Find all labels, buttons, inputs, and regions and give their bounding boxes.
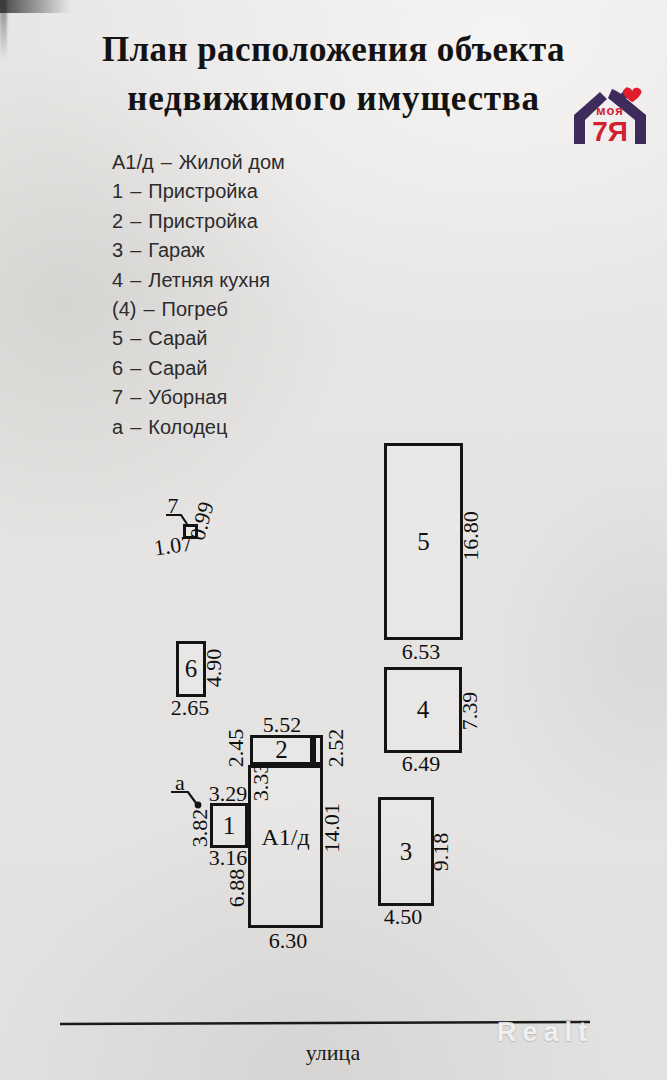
dim-b7-height: 0.99 (186, 500, 217, 543)
dim-b6-width: 2.65 (171, 697, 210, 719)
dim-b2-height-left: 2.45 (225, 729, 247, 768)
dim-b3-width: 4.50 (384, 906, 423, 928)
building-1-number: 1 (223, 812, 236, 840)
building-2-porch-strip (313, 735, 323, 765)
building-5-shed: 5 (384, 443, 463, 640)
dim-b3-height: 9.18 (430, 833, 452, 872)
building-4-number: 4 (417, 696, 430, 724)
dim-b5-height: 16.80 (460, 511, 482, 561)
realt-watermark: Realt (497, 1017, 593, 1048)
dim-b1-width-bottom: 3.16 (209, 847, 248, 869)
building-4-summer-kitchen: 4 (384, 667, 462, 753)
dim-b4-width: 6.49 (402, 753, 441, 775)
dim-b2-width: 5.52 (263, 714, 302, 736)
building-2-annex: 2 (250, 735, 313, 765)
dim-b6-height: 4.90 (203, 649, 225, 688)
building-1-annex: 1 (210, 803, 248, 848)
building-a1d-number: А1/д (261, 824, 309, 851)
dim-b1-width-top: 3.29 (209, 783, 248, 805)
dim-b5-width: 6.53 (402, 641, 441, 663)
dim-a1d-left-bottom: 6.88 (226, 869, 248, 908)
building-6-number: 6 (185, 655, 198, 683)
dim-a1d-height-right: 14.01 (321, 803, 343, 853)
plan-lines-overlay (0, 0, 667, 1080)
building-2-number: 2 (275, 736, 288, 764)
dim-b2-height-right: 2.52 (325, 729, 347, 768)
building-3-number: 3 (400, 838, 413, 866)
dim-b4-height: 7.39 (459, 692, 481, 731)
well-dot-icon (195, 802, 202, 809)
dim-a1d-width-bottom: 6.30 (269, 930, 308, 952)
building-5-number: 5 (417, 528, 430, 556)
label-well-key: а (175, 772, 185, 794)
dim-b1-height-left: 3.82 (189, 809, 211, 848)
scanned-site-plan-document: План расположения объекта недвижимого им… (0, 0, 667, 1080)
dim-a1d-left-top: 3.33 (250, 763, 272, 802)
street-label: улица (306, 1040, 360, 1066)
building-3-garage: 3 (378, 797, 434, 906)
label-building-7-key: 7 (168, 495, 179, 517)
site-plan-drawing: 5 4 3 6 2 А1/д 1 6.53 16.80 6.49 7.39 4.… (0, 0, 667, 1080)
